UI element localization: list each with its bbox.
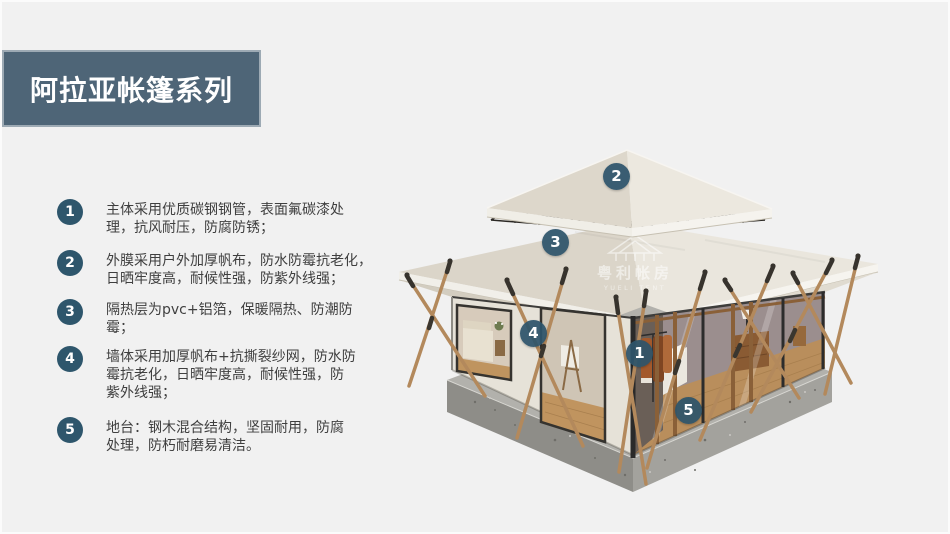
feature-number-badge: 3 bbox=[57, 299, 83, 325]
slide-page: 阿拉亚帐篷系列 1 主体采用优质碳钢钢管，表面氟碳漆处 理，抗风耐压，防腐防锈；… bbox=[0, 0, 950, 534]
feature-text: 地台：钢木混合结构，坚固耐用，防腐 处理，防朽耐磨易清洁。 bbox=[106, 417, 398, 455]
feature-item-3: 3 隔热层为pvc+铝箔，保暖隔热、防潮防 霉； bbox=[57, 299, 398, 337]
feature-number-badge: 2 bbox=[57, 250, 83, 276]
title-banner: 阿拉亚帐篷系列 bbox=[2, 50, 261, 127]
feature-number-badge: 1 bbox=[57, 199, 83, 225]
feature-number-badge: 4 bbox=[57, 346, 83, 372]
feature-text: 墙体采用加厚帆布+抗撕裂纱网，防水防 霉抗老化，日晒牢度高，耐候性强，防 紫外线… bbox=[106, 346, 398, 402]
callout-badge-5: 5 bbox=[675, 397, 702, 424]
page-title: 阿拉亚帐篷系列 bbox=[30, 69, 233, 109]
callout-badge-3: 3 bbox=[542, 229, 569, 256]
feature-text: 隔热层为pvc+铝箔，保暖隔热、防潮防 霉； bbox=[106, 299, 398, 337]
feature-text: 外膜采用户外加厚帆布，防水防霉抗老化， 日晒牢度高，耐候性强，防紫外线强； bbox=[106, 250, 398, 288]
callout-badge-2: 2 bbox=[603, 163, 630, 190]
tent-illustration: 粤利帐房 YUELI TENT bbox=[395, 140, 950, 534]
watermark-cn: 粤利帐房 bbox=[597, 264, 673, 282]
watermark-en: YUELI TENT bbox=[603, 284, 666, 292]
feature-text: 主体采用优质碳钢钢管，表面氟碳漆处 理，抗风耐压，防腐防锈； bbox=[106, 199, 398, 237]
top-roof bbox=[487, 150, 772, 237]
tent-render: 粤利帐房 YUELI TENT bbox=[395, 140, 950, 534]
left-window bbox=[457, 305, 511, 380]
feature-item-1: 1 主体采用优质碳钢钢管，表面氟碳漆处 理，抗风耐压，防腐防锈； bbox=[57, 199, 398, 237]
callout-badge-4: 4 bbox=[520, 320, 547, 347]
callout-badge-1: 1 bbox=[626, 340, 653, 367]
feature-number-badge: 5 bbox=[57, 417, 83, 443]
feature-item-4: 4 墙体采用加厚帆布+抗撕裂纱网，防水防 霉抗老化，日晒牢度高，耐候性强，防 紫… bbox=[57, 346, 398, 402]
feature-item-5: 5 地台：钢木混合结构，坚固耐用，防腐 处理，防朽耐磨易清洁。 bbox=[57, 417, 398, 455]
feature-item-2: 2 外膜采用户外加厚帆布，防水防霉抗老化， 日晒牢度高，耐候性强，防紫外线强； bbox=[57, 250, 398, 288]
